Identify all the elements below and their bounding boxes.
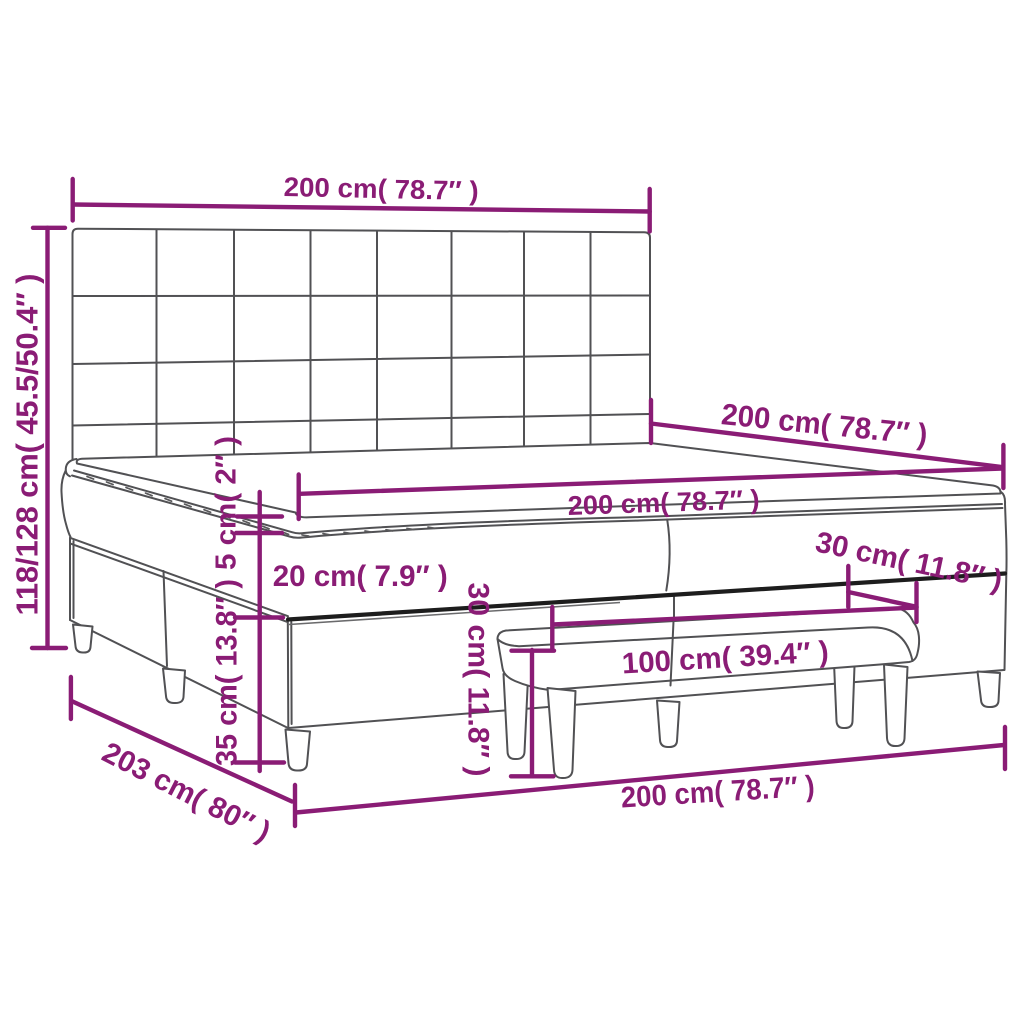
- svg-text:200 cm( 78.7″ ): 200 cm( 78.7″ ): [283, 172, 479, 206]
- svg-text:118/128 cm( 45.5/50.4″ ): 118/128 cm( 45.5/50.4″ ): [10, 274, 45, 616]
- svg-text:5 cm( 2″ ): 5 cm( 2″ ): [211, 436, 243, 570]
- svg-text:35 cm( 13.8″ ): 35 cm( 13.8″ ): [211, 579, 244, 766]
- svg-text:20 cm( 7.9″ ): 20 cm( 7.9″ ): [273, 560, 448, 593]
- svg-text:30 cm( 11.8″ ): 30 cm( 11.8″ ): [462, 583, 495, 777]
